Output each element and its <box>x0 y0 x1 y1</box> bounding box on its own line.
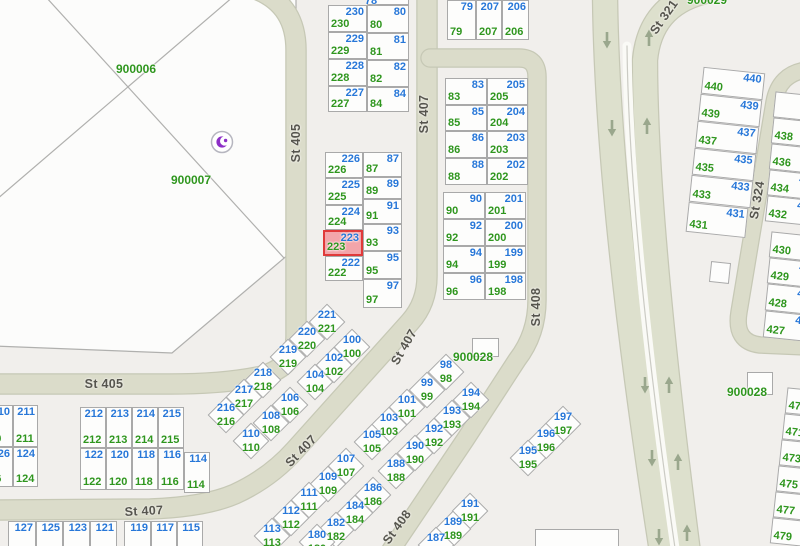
parcel-number-blue: 180 <box>308 528 326 542</box>
parcel-number-blue: 78 <box>365 0 377 7</box>
parcel-number-green: 439 <box>701 107 721 122</box>
parcel-number-pair: 106106 <box>281 391 299 419</box>
parcel-number-blue: 109 <box>319 470 337 484</box>
parcel-number-blue: 82 <box>394 61 406 74</box>
parcel-number-green: 201 <box>488 205 506 218</box>
parcel-number-blue: 221 <box>318 308 336 322</box>
parcel-number-blue: 229 <box>346 33 364 46</box>
parcel-cell[interactable]: 203203 <box>487 131 528 158</box>
parcel-number-blue: 196 <box>537 427 555 441</box>
parcel-cell[interactable]: 202202 <box>487 158 528 185</box>
parcel-number-green: 204 <box>490 117 508 130</box>
parcel-cell[interactable] <box>709 261 731 284</box>
parcel-number-blue: 93 <box>387 225 399 238</box>
parcel-number-blue: 103 <box>380 411 398 425</box>
parcel-number-green: 85 <box>448 117 460 130</box>
parcel-cell[interactable]: 226226 <box>325 152 363 178</box>
parcel-cell[interactable]: 120120 <box>106 448 132 490</box>
parcel-cell[interactable]: 8686 <box>445 131 487 158</box>
parcel-cell[interactable]: 227227 <box>328 86 367 112</box>
parcel-cell[interactable]: 214214 <box>132 407 158 448</box>
parcel-number-blue: 206 <box>508 1 526 14</box>
parcel-number-pair: 216216 <box>217 401 235 429</box>
parcel-number-green: 88 <box>448 171 460 184</box>
parcel-number-green: 431 <box>689 218 709 233</box>
parcel-number-green: 438 <box>774 130 794 145</box>
parcel-number-green: 79 <box>450 26 462 39</box>
parcel-number-green: 120 <box>109 476 127 489</box>
parcel-cell[interactable]: 230230 <box>328 5 367 32</box>
parcel-number-pair: 108108 <box>262 409 280 437</box>
parcel-number-pair: 194194 <box>462 386 480 414</box>
tract-label-900006: 900006 <box>116 62 156 76</box>
parcel-number-green: 105 <box>363 442 381 456</box>
parcel-number-green: 110 <box>242 441 260 455</box>
parcel-number-blue: 215 <box>163 408 181 421</box>
parcel-number-green: 186 <box>364 495 382 509</box>
parcel-number-pair: 189189 <box>444 515 462 543</box>
parcel-cell[interactable]: 115 <box>177 521 203 546</box>
parcel-layer: 2302302292292282282272278080818182828484… <box>0 0 800 546</box>
parcel-number-blue: 92 <box>470 220 482 233</box>
parcel-number-green: 113 <box>263 536 281 546</box>
parcel-number-blue: 198 <box>505 274 523 287</box>
parcel-number-green: 104 <box>306 382 324 396</box>
parcel-number-blue: 112 <box>282 504 300 518</box>
parcel-number-green: 90 <box>446 205 458 218</box>
parcel-number-pair: 192192 <box>425 422 443 450</box>
parcel-number-green: 112 <box>282 518 300 532</box>
parcel-number-blue: 184 <box>346 499 364 513</box>
parcel-number-green: 196 <box>537 441 555 455</box>
parcel-cell[interactable]: 210210 <box>0 405 13 447</box>
parcel-cell[interactable]: 8787 <box>363 152 402 177</box>
parcel-number-green: 89 <box>366 185 378 198</box>
parcel-number-pair: 102102 <box>325 351 343 379</box>
parcel-number-blue: 437 <box>737 126 757 141</box>
parcel-number-blue: 87 <box>387 153 399 166</box>
street-label-st408-vertical: St 408 <box>529 288 543 327</box>
parcel-number-green: 229 <box>331 45 349 58</box>
parcel-cell[interactable]: 7979 <box>447 0 476 40</box>
parcel-number-blue: 80 <box>394 6 406 19</box>
parcel-number-blue: 222 <box>342 257 360 270</box>
parcel-cell[interactable]: 125 <box>36 521 63 546</box>
parcel-number-pair: 110110 <box>242 427 260 455</box>
parcel-number-blue: 213 <box>111 408 129 421</box>
parcel-number-pair: 186186 <box>364 481 382 509</box>
parcel-cell[interactable]: 200200 <box>485 219 526 246</box>
parcel-cell[interactable]: 8383 <box>445 78 487 105</box>
parcel-number-blue: 224 <box>342 206 360 219</box>
parcel-cell[interactable]: 205205 <box>487 78 528 105</box>
parcel-number-blue: 217 <box>235 383 253 397</box>
parcel-number-green: 80 <box>370 19 382 32</box>
parcel-number-pair: 188188 <box>387 457 405 485</box>
parcel-cell[interactable]: 229229 <box>328 32 367 59</box>
parcel-number-green: 103 <box>380 425 398 439</box>
parcel-number-green: 197 <box>554 424 572 438</box>
parcel-number-blue: 187 <box>427 531 445 545</box>
parcel-number-blue: 428 <box>797 288 800 303</box>
parcel-number-green: 81 <box>370 46 382 59</box>
parcel-number-green: 193 <box>443 418 461 432</box>
parcel-number-blue: 440 <box>743 72 763 87</box>
parcel-number-green: 198 <box>488 286 506 299</box>
parcel-number-green: 195 <box>519 458 537 472</box>
parcel-number-green: 213 <box>109 434 127 447</box>
parcel-cell[interactable]: 119 <box>124 521 151 546</box>
parcel-number-green: 433 <box>692 188 712 203</box>
parcel-number-green: 82 <box>370 73 382 86</box>
parcel-cell[interactable]: 222222 <box>325 256 363 281</box>
parcel-number-green: 100 <box>343 347 361 361</box>
parcel-number-blue: 120 <box>111 449 129 462</box>
parcel-cell[interactable]: 431431 <box>686 202 749 238</box>
parcel-number-green: 200 <box>488 232 506 245</box>
parcel-number-blue: 193 <box>443 404 461 418</box>
parcel-number-pair: 197197 <box>554 410 572 438</box>
parcel-cell[interactable]: 224224 <box>325 205 363 230</box>
parcel-number-blue: 211 <box>17 406 35 419</box>
parcel-number-pair: 220220 <box>298 325 316 353</box>
parcel-number-green: 219 <box>279 357 297 371</box>
parcel-number-pair: 193193 <box>443 404 461 432</box>
parcel-number-blue: 88 <box>472 159 484 172</box>
parcel-number-green: 210 <box>0 433 1 446</box>
tract-label-900029: 900029 <box>687 0 727 7</box>
parcel-number-green: 109 <box>319 484 337 498</box>
parcel-number-pair: 9999 <box>421 376 433 404</box>
parcel-cell[interactable]: 198198 <box>485 273 526 300</box>
parcel-number-green: 122 <box>83 476 101 489</box>
parcel-number-pair: 217217 <box>235 383 253 411</box>
parcel-number-blue: 201 <box>505 193 523 206</box>
parcel-number-green: 116 <box>161 476 179 489</box>
parcel-number-blue: 194 <box>462 386 480 400</box>
parcel-number-blue: 191 <box>461 497 479 511</box>
parcel-cell[interactable]: 121 <box>90 521 117 546</box>
parcel-cell[interactable]: 204204 <box>487 105 528 131</box>
parcel-number-green: 83 <box>448 91 460 104</box>
parcel-cell[interactable]: 9595 <box>363 251 402 279</box>
parcel-cell[interactable]: 207207 <box>476 0 502 40</box>
parcel-number-blue: 127 <box>15 522 33 535</box>
parcel-number-blue: 111 <box>300 486 317 500</box>
parcel-cell[interactable]: 8181 <box>367 33 409 60</box>
parcel-number-blue: 223 <box>341 232 359 245</box>
parcel-number-blue: 99 <box>421 376 433 390</box>
parcel-number-blue: 197 <box>554 410 572 424</box>
parcel-number-green: 230 <box>331 18 349 31</box>
parcel-number-green: 194 <box>462 400 480 414</box>
parcel-number-blue: 435 <box>734 153 754 168</box>
street-label-st407-bottom: St 407 <box>124 503 163 519</box>
parcel-number-pair: 221221 <box>318 308 336 336</box>
parcel-number-blue: 188 <box>387 457 405 471</box>
parcel-number-green: 212 <box>83 434 101 447</box>
parcel-number-blue: 104 <box>306 368 324 382</box>
parcel-number-blue: 200 <box>505 220 523 233</box>
parcel-cell[interactable]: 9090 <box>443 192 485 219</box>
parcel-cell[interactable]: 9393 <box>363 224 402 251</box>
parcel-number-green: 191 <box>461 511 479 525</box>
parcel-number-blue: 218 <box>254 366 272 380</box>
parcel-cell-selected[interactable]: 223223 <box>323 230 363 256</box>
parcel-number-blue: 227 <box>346 87 364 100</box>
parcel-number-blue: 212 <box>85 408 103 421</box>
parcel-number-green: 475 <box>779 478 799 493</box>
parcel-number-green: 206 <box>505 26 523 39</box>
parcel-number-blue: 122 <box>85 449 103 462</box>
street-label-st405-vertical: St 405 <box>289 124 303 163</box>
parcel-number-blue: 97 <box>387 280 399 293</box>
parcel-number-blue: 204 <box>507 106 525 119</box>
parcel-number-green: 217 <box>235 397 253 411</box>
parcel-number-blue: 105 <box>363 428 381 442</box>
parcel-number-green: 126 <box>0 473 1 486</box>
parcel-number-blue: 210 <box>0 406 10 419</box>
parcel-number-pair: 191191 <box>461 497 479 525</box>
parcel-number-blue: 228 <box>346 60 364 73</box>
tract-label-900028-west: 900028 <box>453 350 493 364</box>
parcel-cell[interactable]: 213213 <box>106 407 132 448</box>
parcel-number-green: 93 <box>366 237 378 250</box>
parcel-number-green: 184 <box>346 513 364 527</box>
parcel-number-green: 218 <box>254 380 272 394</box>
parcel-cell[interactable]: 212212 <box>80 407 106 448</box>
parcel-cell[interactable]: 127 <box>8 521 36 546</box>
parcel-number-blue: 113 <box>263 522 281 536</box>
parcel-cell[interactable]: 123 <box>63 521 90 546</box>
parcel-number-blue: 90 <box>470 193 482 206</box>
parcel-number-green: 436 <box>772 156 792 171</box>
parcel-number-pair: 100100 <box>343 333 361 361</box>
parcel-number-blue: 81 <box>394 34 406 47</box>
parcel-number-pair: 196196 <box>537 427 555 455</box>
parcel-number-blue: 117 <box>156 522 174 535</box>
parcel-number-blue: 85 <box>472 106 484 119</box>
parcel-number-blue: 432 <box>797 200 800 215</box>
parcel-number-green: 202 <box>490 171 508 184</box>
parcel-number-green: 189 <box>444 529 462 543</box>
parcel-number-green: 440 <box>704 80 724 95</box>
parcel-number-blue: 94 <box>470 247 482 260</box>
parcel-number-pair: 111111 <box>300 486 317 514</box>
parcel-number-blue: 102 <box>325 351 343 365</box>
parcel-number-blue: 106 <box>281 391 299 405</box>
parcel-number-green: 432 <box>768 208 788 223</box>
parcel-cell[interactable]: 427427 <box>763 310 800 342</box>
parcel-number-green: 437 <box>698 134 718 149</box>
parcel-number-pair: 104104 <box>306 368 324 396</box>
parcel-number-blue: 207 <box>481 1 499 14</box>
street-label-st407-vertical: St 407 <box>417 95 431 134</box>
parcel-number-blue: 126 <box>0 448 10 461</box>
parcel-cell[interactable]: 9191 <box>363 199 402 224</box>
parcel-number-blue: 116 <box>163 449 181 462</box>
parcel-number-blue: 195 <box>519 444 537 458</box>
parcel-cell[interactable]: 126126 <box>0 447 13 487</box>
parcel-number-blue: 189 <box>444 515 462 529</box>
parcel-number-blue: 123 <box>69 522 87 535</box>
parcel-number-blue: 79 <box>461 1 473 14</box>
parcel-number-blue: 86 <box>472 132 484 145</box>
parcel-number-blue: 107 <box>337 452 355 466</box>
parcel-number-blue: 121 <box>96 522 114 535</box>
parcel-number-blue: 192 <box>425 422 443 436</box>
parcel-number-pair: 107107 <box>337 452 355 480</box>
parcel-cell[interactable]: 228228 <box>328 59 367 86</box>
parcel-number-pair: 101101 <box>398 393 416 421</box>
parcel-cell[interactable] <box>535 529 619 546</box>
parcel-number-green: 471 <box>785 426 800 441</box>
parcel-number-pair: 105105 <box>363 428 381 456</box>
parcel-number-green: 87 <box>366 163 378 176</box>
tract-label-900028-east: 900028 <box>727 385 767 399</box>
parcel-number-blue: 205 <box>507 79 525 92</box>
parcel-number-green: 470 <box>788 400 800 415</box>
parcel-number-green: 111 <box>300 500 317 514</box>
parcel-cell[interactable]: 118118 <box>132 448 158 490</box>
parcel-number-green: 228 <box>331 72 349 85</box>
parcel-number-blue: 124 <box>17 448 35 461</box>
parcel-number-green: 101 <box>398 407 416 421</box>
parcel-number-green: 106 <box>281 405 299 419</box>
parcel-cell[interactable]: 116116 <box>158 448 184 490</box>
parcel-number-pair: 195195 <box>519 444 537 472</box>
parcel-number-green: 188 <box>387 471 405 485</box>
parcel-number-green: 434 <box>770 182 790 197</box>
parcel-number-green: 479 <box>773 530 793 545</box>
parcel-cell[interactable]: 8989 <box>363 177 402 199</box>
parcel-cell[interactable]: 114114 <box>184 452 210 493</box>
parcel-number-green: 215 <box>161 434 179 447</box>
parcel-number-blue: 101 <box>398 393 416 407</box>
parcel-number-blue: 427 <box>795 315 800 330</box>
parcel-number-blue: 433 <box>731 180 751 195</box>
parcel-number-blue: 108 <box>262 409 280 423</box>
parcel-number-green: 211 <box>16 433 34 446</box>
parcel-cell[interactable]: 8888 <box>445 158 487 185</box>
parcel-number-green: 84 <box>370 98 382 111</box>
parcel-number-green: 107 <box>337 466 355 480</box>
parcel-number-green: 92 <box>446 232 458 245</box>
parcel-number-blue: 431 <box>726 207 746 222</box>
parcel-number-green: 477 <box>776 504 796 519</box>
parcel-number-blue: 89 <box>387 178 399 191</box>
parcel-number-pair: 219219 <box>279 343 297 371</box>
parcel-number-pair: 218218 <box>254 366 272 394</box>
parcel-number-blue: 125 <box>42 522 60 535</box>
parcel-number-blue: 95 <box>387 252 399 265</box>
parcel-number-green: 427 <box>766 324 786 339</box>
parcel-cell[interactable]: 432432 <box>765 195 800 226</box>
parcel-number-green: 192 <box>425 436 443 450</box>
parcel-number-blue: 199 <box>505 247 523 260</box>
parcel-number-blue: 84 <box>394 88 406 101</box>
parcel-number-green: 98 <box>440 372 452 386</box>
parcel-number-pair: 182182 <box>327 516 345 544</box>
parcel-number-pair: 187187 <box>427 531 445 546</box>
parcel-number-green: 182 <box>327 530 345 544</box>
parcel-number-blue: 114 <box>189 453 207 466</box>
parcel-cell[interactable]: 124124 <box>13 447 38 487</box>
parcel-number-pair: 180180 <box>308 528 326 546</box>
parcel-cell[interactable]: 201201 <box>485 192 526 219</box>
parcel-number-green: 124 <box>16 473 34 486</box>
parcel-number-blue: 100 <box>343 333 361 347</box>
parcel-number-blue: 110 <box>242 427 260 441</box>
parcel-cell[interactable]: 9292 <box>443 219 485 246</box>
parcel-cell[interactable]: 117 <box>151 521 177 546</box>
parcel-cell[interactable]: 8282 <box>367 60 409 87</box>
parcel-number-pair: 103103 <box>380 411 398 439</box>
parcel-number-green: 91 <box>366 210 378 223</box>
parcel-number-green: 180 <box>308 542 326 546</box>
parcel-number-green: 207 <box>479 26 497 39</box>
parcel-number-green: 430 <box>772 244 792 259</box>
parcel-cell[interactable]: 199199 <box>485 246 526 273</box>
parcel-number-pair: 113113 <box>263 522 281 546</box>
parcel-number-blue: 83 <box>472 79 484 92</box>
parcel-number-green: 220 <box>298 339 316 353</box>
parcel-number-blue: 439 <box>740 99 760 114</box>
parcel-cell[interactable]: 9494 <box>443 246 485 273</box>
parcel-number-green: 214 <box>135 434 153 447</box>
parcel-number-pair: 190190 <box>406 439 424 467</box>
parcel-cell[interactable]: 8585 <box>445 105 487 131</box>
parcel-cell[interactable]: 479479 <box>770 517 800 546</box>
parcel-cell[interactable]: 225225 <box>325 178 363 205</box>
tract-label-900007: 900007 <box>171 173 211 187</box>
parcel-number-blue: 230 <box>346 6 364 19</box>
parcel-number-blue: 182 <box>327 516 345 530</box>
parcel-number-blue: 203 <box>507 132 525 145</box>
parcel-cell[interactable]: 8080 <box>367 5 409 33</box>
map-canvas: 2302302292292282282272278080818182828484… <box>0 0 800 546</box>
parcel-cell[interactable]: 211211 <box>13 405 38 447</box>
parcel-number-blue: 226 <box>342 153 360 166</box>
parcel-number-green: 216 <box>217 415 235 429</box>
parcel-number-green: 118 <box>135 476 153 489</box>
parcel-number-blue: 186 <box>364 481 382 495</box>
parcel-number-blue: 91 <box>387 200 399 213</box>
parcel-cell[interactable]: 9797 <box>363 279 402 308</box>
parcel-cell[interactable]: 122122 <box>80 448 106 490</box>
parcel-number-green: 428 <box>768 297 788 312</box>
parcel-number-green: 94 <box>446 259 458 272</box>
parcel-number-blue: 216 <box>217 401 235 415</box>
parcel-number-blue: 219 <box>279 343 297 357</box>
parcel-number-green: 95 <box>366 265 378 278</box>
parcel-number-blue: 98 <box>440 358 452 372</box>
parcel-number-blue: 220 <box>298 325 316 339</box>
parcel-number-green: 205 <box>490 91 508 104</box>
parcel-cell[interactable]: 215215 <box>158 407 184 448</box>
parcel-cell[interactable]: 8484 <box>367 87 409 112</box>
parcel-number-green: 473 <box>782 452 800 467</box>
parcel-cell[interactable]: 9696 <box>443 273 485 300</box>
parcel-cell[interactable]: 206206 <box>502 0 529 40</box>
parcel-number-blue: 225 <box>342 179 360 192</box>
parcel-number-green: 102 <box>325 365 343 379</box>
parcel-number-green: 96 <box>446 286 458 299</box>
parcel-number-blue: 118 <box>137 449 155 462</box>
parcel-number-green: 429 <box>770 270 790 285</box>
parcel-number-pair: 184184 <box>346 499 364 527</box>
parcel-number-green: 86 <box>448 144 460 157</box>
